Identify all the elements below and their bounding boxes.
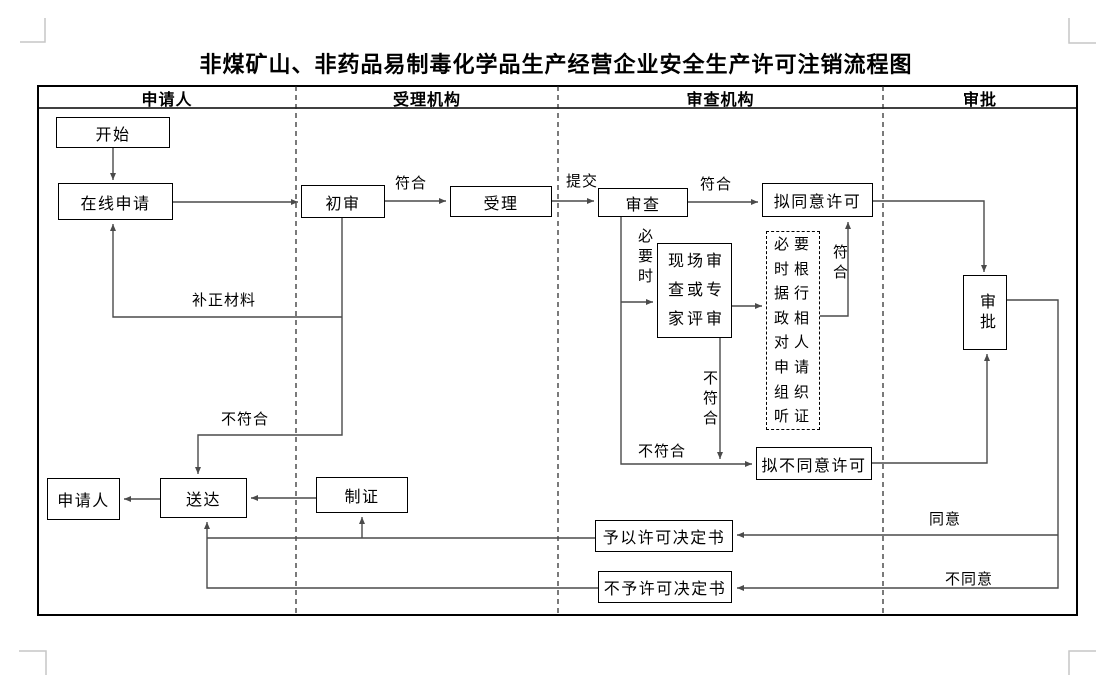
lane-header-approval: 审批 [883,87,1077,108]
label-supplement-material: 补正材料 [189,289,259,310]
node-accept: 受理 [450,186,552,217]
label-when-necessary: 必要时 [634,228,655,288]
label-not-conform-initial: 不符合 [215,408,275,429]
node-permit-decision: 予以许可决定书 [595,520,733,552]
node-review: 审查 [598,188,688,217]
node-site-review: 现场审查或专家评审 [657,243,732,338]
label-conform-hearing: 符合 [829,244,850,284]
page-title: 非煤矿山、非药品易制毒化学品生产经营企业安全生产许可注销流程图 [0,47,1112,79]
node-initial-review: 初审 [301,185,385,218]
label-conform-review: 符合 [696,173,736,194]
edge-no-permit-to-deliver [207,522,598,588]
node-make-cert: 制证 [316,477,408,513]
node-online-apply: 在线申请 [58,183,173,220]
label-submit: 提交 [562,170,602,191]
margin-mark-top-right [1069,18,1096,43]
node-no-permit-decision: 不予许可决定书 [598,571,732,603]
label-not-conform-review: 不符合 [632,440,692,461]
lane-header-applicant: 申请人 [38,87,296,108]
label-agree: 同意 [920,508,970,529]
edge-initial-review-not-conform-to-deliver [198,218,342,474]
node-deliver: 送达 [160,478,247,518]
label-conform-initial: 符合 [391,172,431,193]
node-propose-approve: 拟同意许可 [762,183,873,217]
node-applicant: 申请人 [47,478,120,520]
node-propose-reject: 拟不同意许可 [756,447,872,480]
node-approve: 审批 [963,275,1007,350]
margin-mark-top-left [20,18,45,42]
lane-header-review-agency: 审查机构 [558,87,883,108]
margin-mark-bottom-right [1069,651,1096,675]
node-start: 开始 [56,117,170,148]
margin-mark-bottom-left [19,651,46,675]
label-not-conform-site: 不符合 [699,370,720,430]
edge-propose-approve-to-approve [873,201,984,272]
node-hearing: 必要时根据行政相对人申请组织听证 [766,231,820,430]
flowchart-page: 非煤矿山、非药品易制毒化学品生产经营企业安全生产许可注销流程图 申请人 受理机构… [0,0,1112,675]
lane-header-accepting-agency: 受理机构 [296,87,558,108]
label-disagree: 不同意 [935,568,1003,589]
edge-propose-reject-to-approve [872,354,987,463]
